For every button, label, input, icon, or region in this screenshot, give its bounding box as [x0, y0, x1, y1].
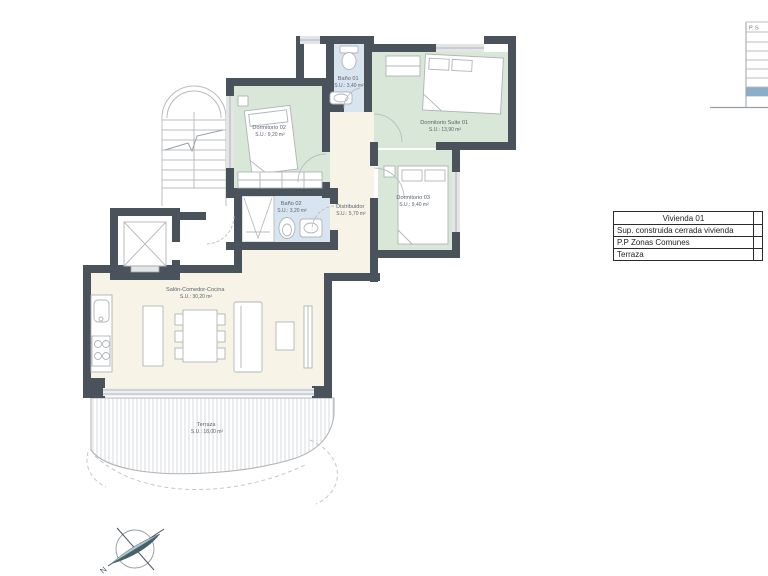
stairs — [162, 86, 226, 206]
sink-bano01 — [330, 92, 352, 104]
kitchen-island — [143, 306, 163, 366]
bed-dormitorio-02 — [244, 105, 297, 174]
window-dorm03 — [452, 172, 460, 232]
wardrobe-suite-01 — [386, 56, 420, 76]
elevator-cab — [124, 222, 166, 272]
dining-table — [175, 310, 225, 362]
table-row: P.P Zonas Comunes — [614, 236, 762, 248]
window-dorm02 — [226, 96, 234, 168]
unit-table-row-label: Sup. construida cerrada vivienda — [614, 226, 753, 235]
unit-summary-table: Vivienda 01 Sup. construida cerrada vivi… — [613, 211, 763, 261]
compass: N — [98, 528, 164, 575]
level-strip-highlight — [747, 88, 768, 97]
label-distribuidor: Distribuidor S.U.: 5,70 m² — [336, 204, 366, 217]
terrace — [87, 398, 337, 504]
floorplan-drawing: Dormitorio 02 S.U.: 9,20 m² Baño 01 S.U.… — [0, 0, 768, 576]
window-suite — [436, 44, 484, 52]
table-row: Terraza — [614, 248, 762, 260]
sink-bano02 — [279, 218, 295, 239]
nightstand — [238, 96, 248, 106]
toilet-bano02 — [300, 219, 322, 237]
window-living-terrace — [103, 388, 314, 396]
terrace-decking — [91, 398, 334, 474]
floorplan-canvas: Dormitorio 02 S.U.: 9,20 m² Baño 01 S.U.… — [0, 0, 768, 576]
compass-north-label: N — [98, 565, 108, 576]
window-bano01 — [300, 36, 320, 44]
wardrobe-dormitorio-02 — [238, 172, 322, 188]
kitchen-counter — [91, 295, 112, 372]
unit-table-header: Vivienda 01 — [614, 214, 753, 223]
coffee-table — [276, 322, 294, 350]
tv-bench — [304, 306, 312, 368]
level-strip-header: P. S — [749, 26, 759, 32]
label-bano-01: Baño 01 S.U.: 3,40 m² — [334, 76, 364, 89]
label-bano-02: Baño 02 S.U.: 3,20 m² — [277, 201, 307, 214]
sofa — [234, 302, 262, 372]
table-row: Vivienda 01 — [614, 212, 762, 224]
table-row: Sup. construida cerrada vivienda — [614, 224, 762, 236]
label-dormitorio-03: Dormitorio 03 S.U.: 9,40 m² — [396, 195, 431, 208]
level-strip: P. S — [710, 22, 768, 108]
closet — [242, 196, 274, 242]
unit-table-row-label: Terraza — [614, 250, 753, 259]
label-dormitorio-02: Dormitorio 02 S.U.: 9,20 m² — [252, 125, 287, 138]
entrance-door-arc — [206, 216, 234, 244]
unit-table-row-label: P.P Zonas Comunes — [614, 238, 753, 247]
bed-suite-01 — [423, 54, 504, 114]
